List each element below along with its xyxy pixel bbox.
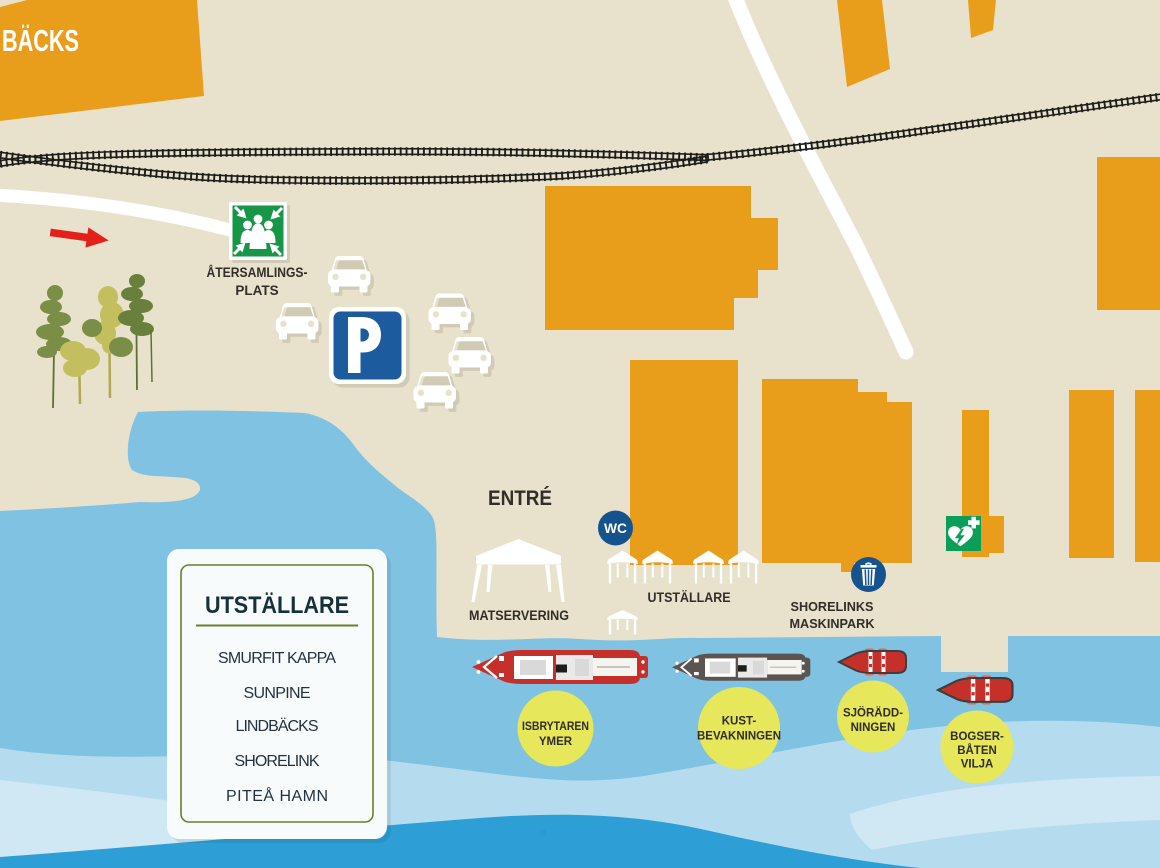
svg-text:MATSERVERING: MATSERVERING [469, 608, 569, 623]
svg-text:PLATS: PLATS [235, 283, 278, 298]
svg-text:UTSTÄLLARE: UTSTÄLLARE [205, 592, 349, 619]
svg-text:YMER: YMER [539, 736, 573, 748]
svg-text:BÅTEN: BÅTEN [957, 744, 997, 757]
svg-text:SHORELINKS: SHORELINKS [791, 599, 874, 614]
svg-text:SJÖRÄDD-: SJÖRÄDD- [843, 707, 903, 720]
svg-text:MASKINPARK: MASKINPARK [790, 616, 876, 631]
svg-text:PITEÅ HAMN: PITEÅ HAMN [226, 786, 328, 805]
svg-text:ÅTERSAMLINGS-: ÅTERSAMLINGS- [207, 265, 308, 280]
svg-text:ISBRYTAREN: ISBRYTAREN [522, 721, 589, 733]
svg-text:BÄCKS: BÄCKS [2, 23, 79, 58]
svg-text:BEVAKNINGEN: BEVAKNINGEN [697, 731, 781, 743]
svg-text:KUST-: KUST- [722, 716, 757, 728]
svg-text:BOGSER-: BOGSER- [950, 731, 1004, 743]
svg-text:SUNPINE: SUNPINE [244, 685, 311, 702]
svg-text:LINDBÄCKS: LINDBÄCKS [236, 717, 319, 735]
svg-text:WC: WC [604, 521, 627, 536]
svg-text:SHORELINK: SHORELINK [235, 753, 320, 770]
svg-text:NINGEN: NINGEN [851, 722, 896, 734]
svg-text:SMURFIT KAPPA: SMURFIT KAPPA [218, 650, 336, 667]
svg-text:ENTRÉ: ENTRÉ [488, 487, 552, 510]
svg-text:VILJA: VILJA [961, 759, 994, 771]
svg-text:UTSTÄLLARE: UTSTÄLLARE [648, 590, 731, 605]
